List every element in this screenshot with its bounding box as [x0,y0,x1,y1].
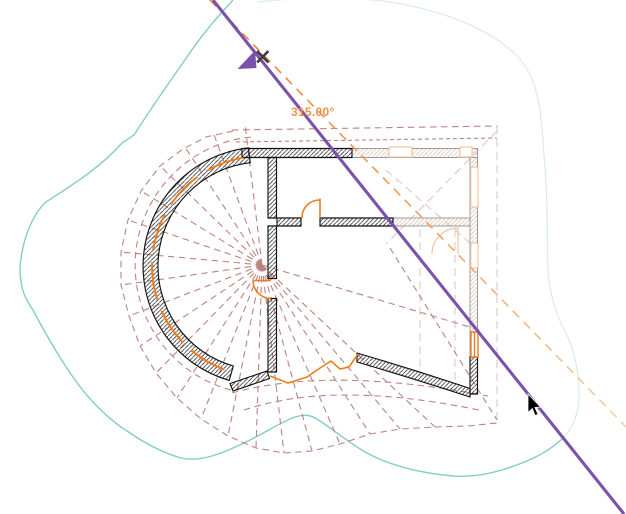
roof-overhang-dashed-fan [121,124,497,453]
cad-viewport[interactable]: 315.00° [0,0,626,514]
cursor-arrow-icon [528,394,541,416]
ghost-window [471,167,478,207]
ghost-window [471,243,478,268]
rotation-arrowhead-icon[interactable] [238,51,257,70]
ghost-window [389,147,412,157]
window [471,332,478,357]
curved-glazed-wall-building [143,148,477,397]
storefront-line [270,354,358,383]
door-swing [302,199,320,219]
drawing-area [0,0,626,514]
angle-readout[interactable]: 315.00° [291,105,335,119]
ghost-window [460,147,472,157]
